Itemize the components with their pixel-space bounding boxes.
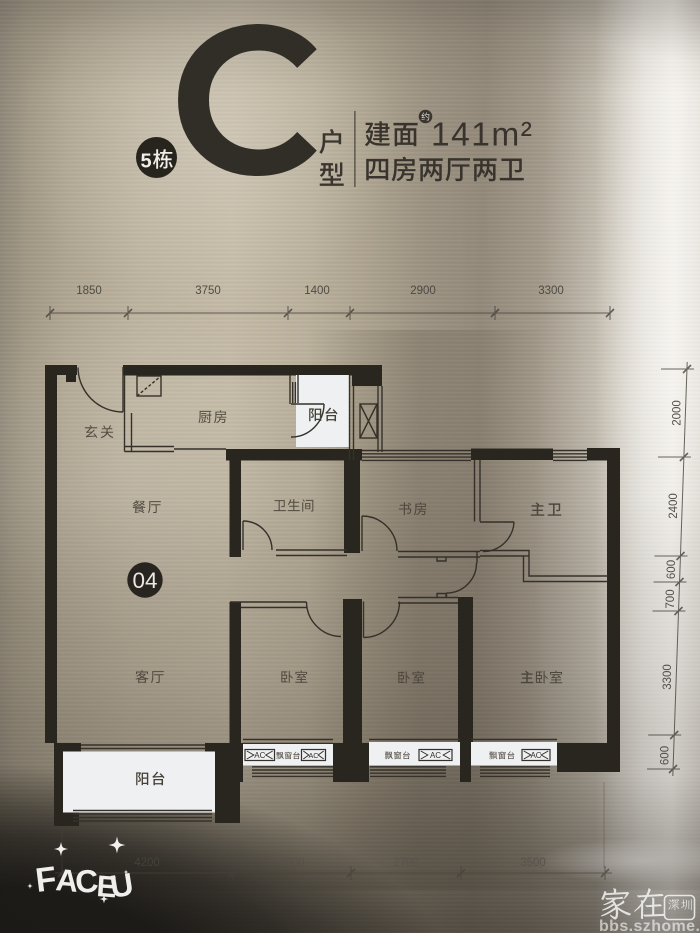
- svg-text:2400: 2400: [668, 493, 680, 519]
- svg-text:141m²: 141m²: [431, 117, 533, 154]
- svg-text:U: U: [107, 866, 135, 905]
- svg-text:04: 04: [132, 568, 157, 593]
- svg-text:3300: 3300: [662, 664, 674, 690]
- svg-text:1850: 1850: [76, 285, 102, 297]
- svg-text:2700: 2700: [393, 857, 419, 869]
- svg-text:2900: 2900: [410, 285, 436, 297]
- svg-text:bbs.szhome.com: bbs.szhome.com: [599, 918, 700, 933]
- svg-text:AC: AC: [254, 751, 265, 760]
- svg-text:AC: AC: [309, 751, 319, 760]
- svg-text:3500: 3500: [520, 857, 546, 869]
- svg-text:AC: AC: [530, 751, 541, 760]
- svg-text:5: 5: [141, 151, 152, 173]
- svg-text:AC: AC: [430, 751, 441, 760]
- svg-text:600: 600: [660, 746, 672, 765]
- svg-text:2800: 2800: [279, 857, 305, 869]
- svg-text:3300: 3300: [538, 285, 564, 297]
- svg-text:700: 700: [665, 589, 677, 608]
- svg-text:4200: 4200: [134, 857, 160, 869]
- svg-text:1400: 1400: [304, 285, 330, 297]
- svg-text:600: 600: [666, 560, 678, 579]
- svg-text:3750: 3750: [195, 285, 221, 297]
- svg-text:2000: 2000: [672, 400, 684, 426]
